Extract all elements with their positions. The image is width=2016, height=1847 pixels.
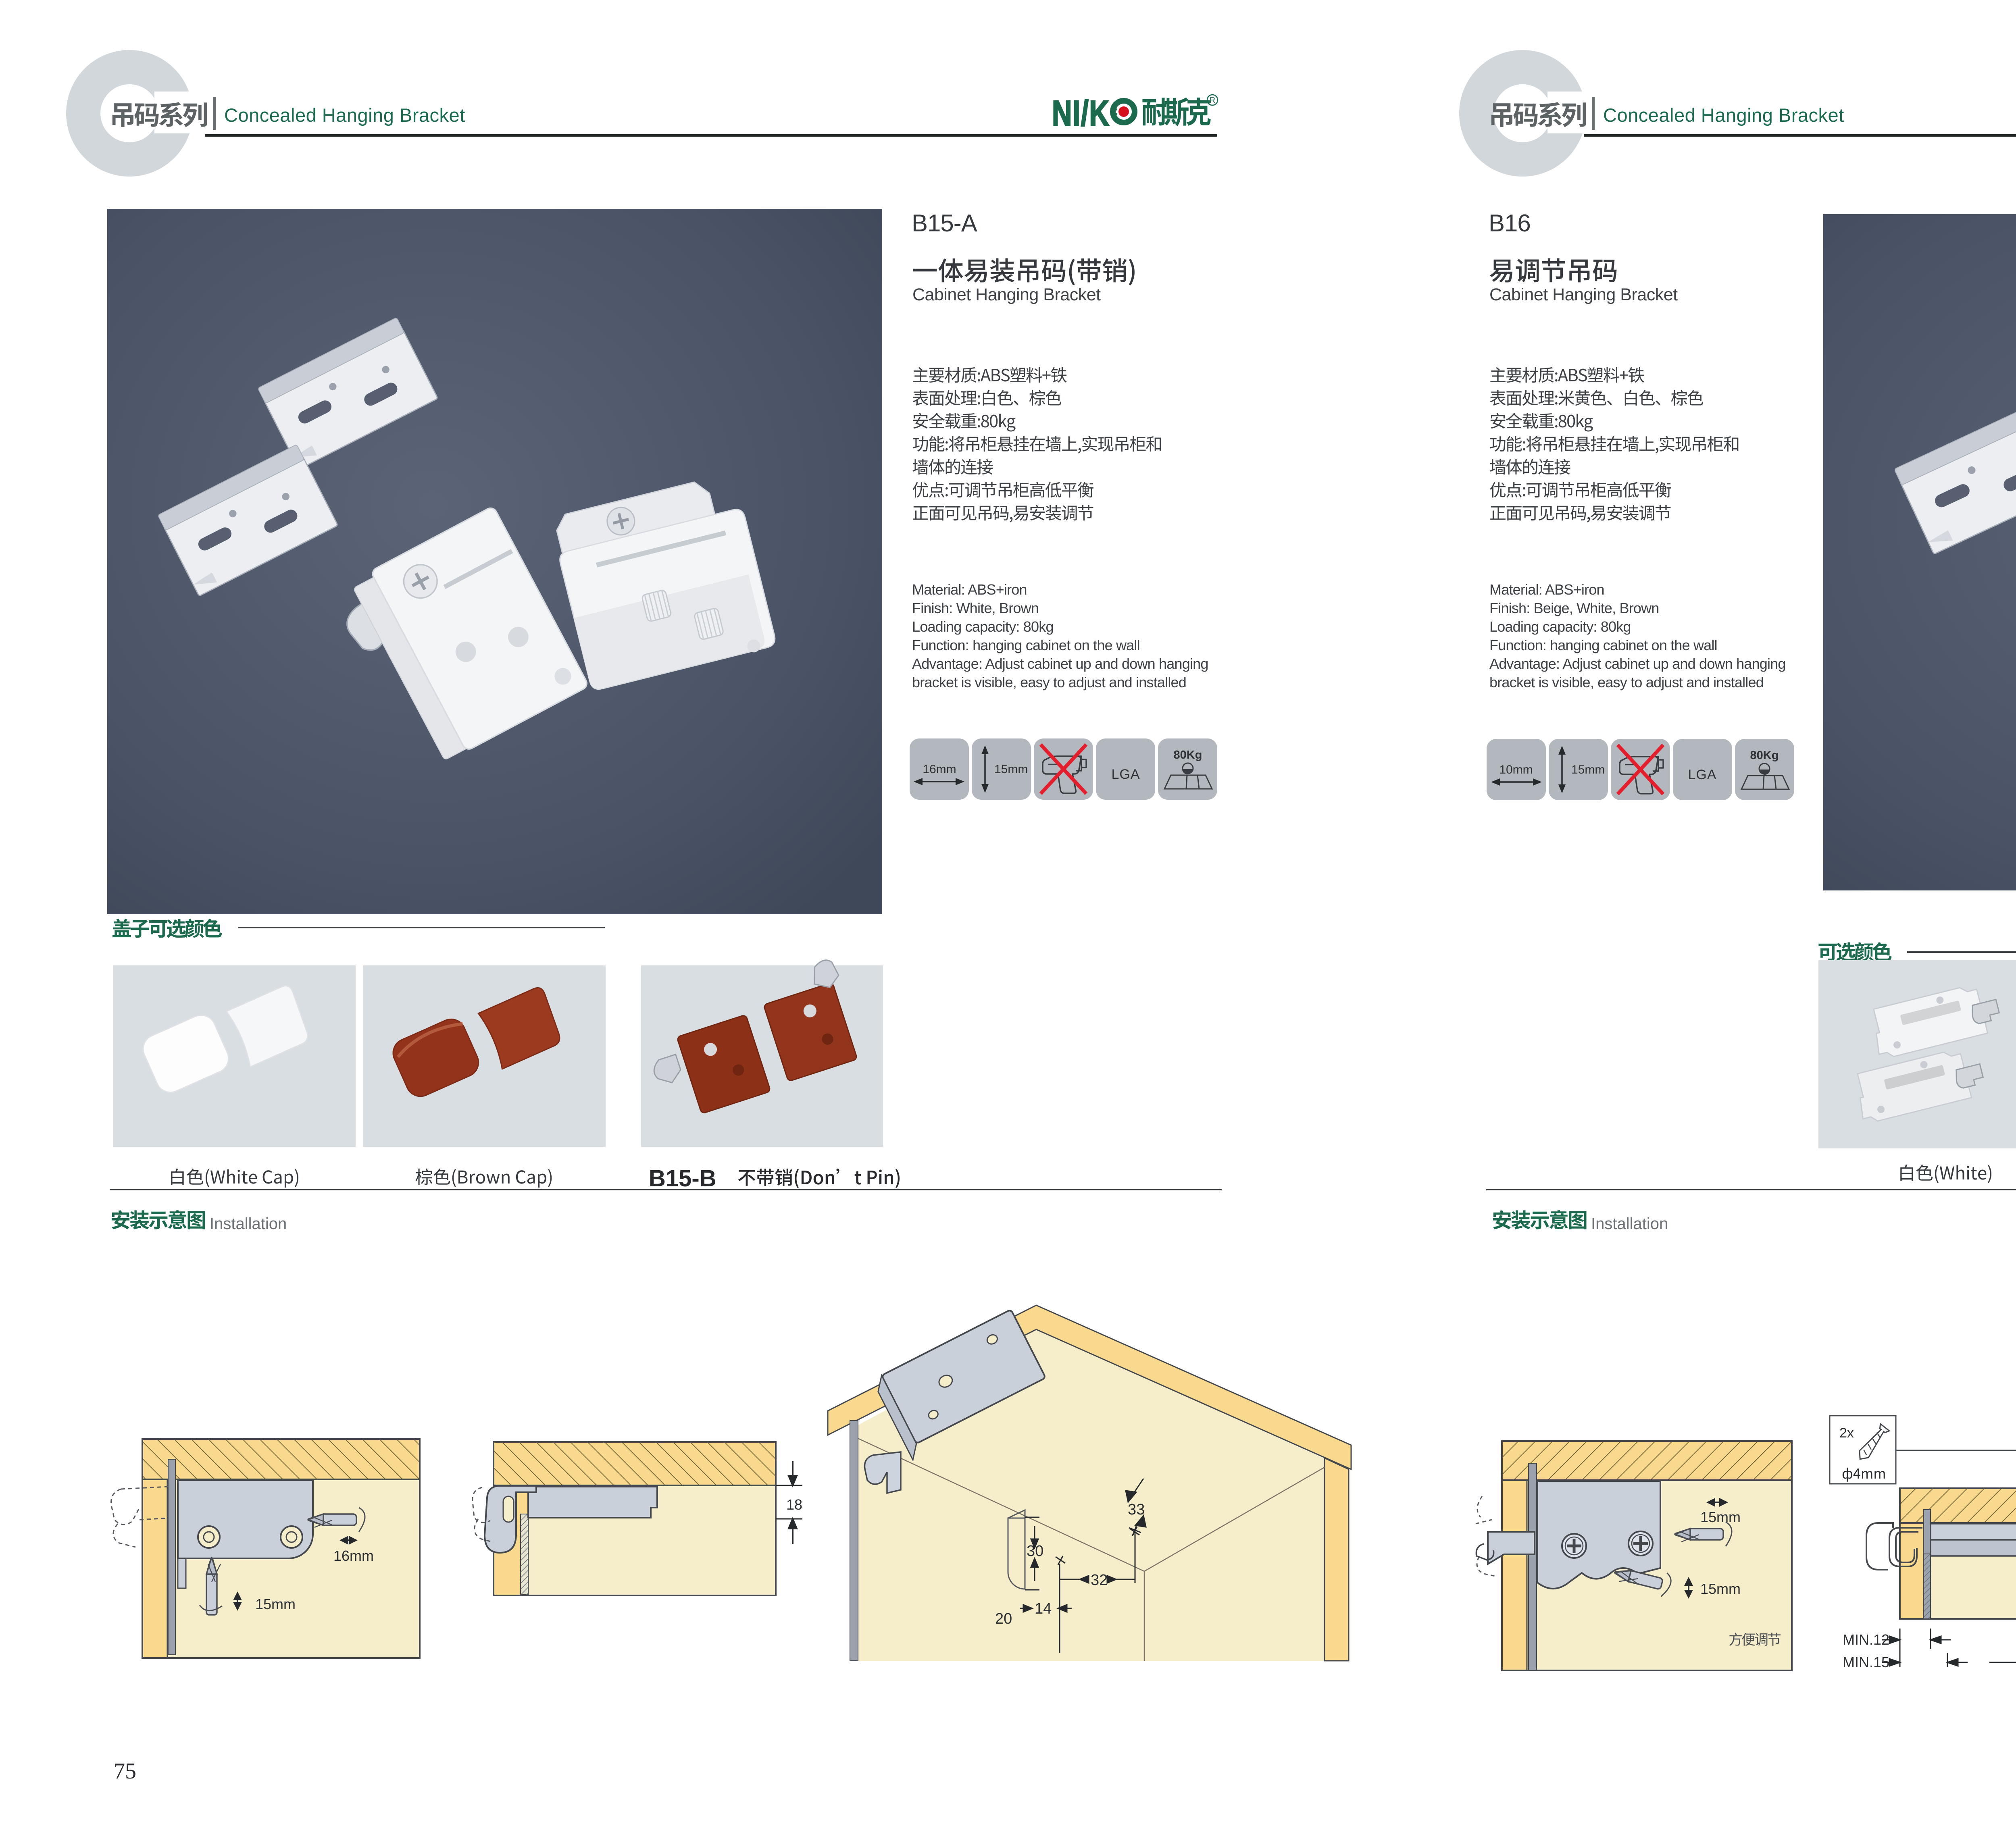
svg-text:75: 75 <box>114 1759 136 1784</box>
svg-text:Advantage: Adjust cabinet up a: Advantage: Adjust cabinet up and down ha… <box>912 655 1208 672</box>
svg-text:15mm: 15mm <box>994 763 1028 776</box>
svg-text:Advantage: Adjust cabinet up a: Advantage: Adjust cabinet up and down ha… <box>1489 655 1786 672</box>
svg-text:Concealed Hanging Bracket: Concealed Hanging Bracket <box>224 104 465 126</box>
svg-text:16mm: 16mm <box>333 1547 374 1564</box>
svg-text:B15-B: B15-B <box>649 1165 716 1192</box>
svg-text:Cabinet Hanging Bracket: Cabinet Hanging Bracket <box>1489 285 1678 304</box>
svg-text:B15-A: B15-A <box>912 210 977 237</box>
svg-text:14: 14 <box>1035 1600 1052 1617</box>
svg-text:B16: B16 <box>1489 210 1531 237</box>
svg-text:Finish: Beige, White, Brown: Finish: Beige, White, Brown <box>1489 600 1659 616</box>
svg-text:Function: hanging cabinet on t: Function: hanging cabinet on the wall <box>1489 637 1717 653</box>
svg-text:bracket is visible, easy to ad: bracket is visible, easy to adjust and i… <box>912 674 1186 691</box>
svg-text:10mm: 10mm <box>1499 763 1533 776</box>
svg-text:R: R <box>1210 96 1215 105</box>
svg-text:Loading capacity: 80kg: Loading capacity: 80kg <box>1489 618 1631 635</box>
svg-text:Concealed Hanging Bracket: Concealed Hanging Bracket <box>1603 104 1844 126</box>
svg-text:15mm: 15mm <box>1700 1581 1741 1597</box>
svg-text:Loading capacity: 80kg: Loading capacity: 80kg <box>912 618 1054 635</box>
svg-text:80Kg: 80Kg <box>1174 749 1202 761</box>
svg-text:20: 20 <box>995 1610 1012 1627</box>
svg-text:80Kg: 80Kg <box>1750 749 1779 762</box>
svg-text:Function: hanging cabinet on t: Function: hanging cabinet on the wall <box>912 637 1140 653</box>
svg-text:18: 18 <box>786 1496 802 1513</box>
svg-text:16mm: 16mm <box>923 763 956 776</box>
svg-text:15mm: 15mm <box>255 1596 296 1612</box>
svg-text:15mm: 15mm <box>1571 763 1605 776</box>
svg-text:Material: ABS+iron: Material: ABS+iron <box>1489 581 1604 598</box>
svg-text:bracket is visible, easy to ad: bracket is visible, easy to adjust and i… <box>1489 674 1764 691</box>
svg-text:LGA: LGA <box>1111 767 1140 782</box>
svg-text:15mm: 15mm <box>1700 1509 1741 1525</box>
svg-text:2x: 2x <box>1839 1425 1854 1441</box>
svg-text:32: 32 <box>1091 1572 1108 1589</box>
svg-text:Installation: Installation <box>210 1215 287 1233</box>
svg-text:Finish: White, Brown: Finish: White, Brown <box>912 600 1039 616</box>
svg-text:Material: ABS+iron: Material: ABS+iron <box>912 581 1027 598</box>
svg-text:Installation: Installation <box>1591 1215 1668 1233</box>
svg-text:NI/K: NI/K <box>1052 94 1110 133</box>
svg-text:30: 30 <box>1027 1543 1043 1560</box>
svg-text:LGA: LGA <box>1688 767 1716 782</box>
svg-text:33: 33 <box>1128 1501 1145 1518</box>
svg-text:Cabinet Hanging Bracket: Cabinet Hanging Bracket <box>912 285 1101 304</box>
